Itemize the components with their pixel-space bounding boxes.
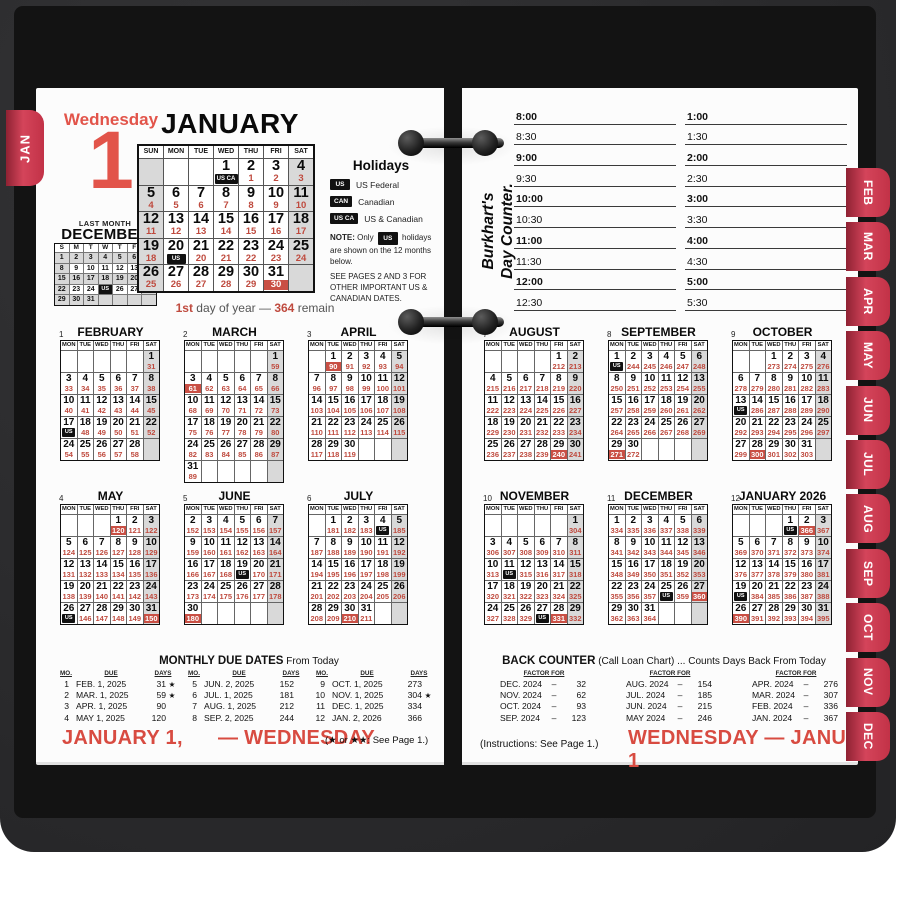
day-count: 34 (78, 384, 94, 393)
schedule-line: 3:30 (685, 207, 847, 228)
mini-day-cell: 20170 (251, 559, 267, 580)
day-count: 164 (268, 548, 284, 557)
day-number: 3 (485, 537, 501, 549)
day-count: 196 (342, 570, 358, 579)
mini-day-cell: 2078 (235, 417, 251, 438)
mini-day-cell (551, 515, 567, 536)
days-remaining-value: 364 (274, 301, 294, 315)
day-number: 8 (783, 537, 799, 549)
day-count: 267 (659, 428, 675, 437)
day-count: 255 (692, 384, 708, 393)
day-count: 289 (799, 406, 815, 415)
day-number: 5 (139, 186, 163, 201)
day-count: 92 (359, 362, 375, 371)
day-number: 15 (609, 395, 625, 407)
us-holiday-marker: US (784, 526, 797, 535)
dow-header-cell: MON (485, 341, 501, 350)
mini-day-cell (675, 603, 691, 624)
day-count: 386 (783, 592, 799, 601)
day-number: 20 (164, 239, 188, 254)
calendar-day-cell: 98 (239, 186, 263, 212)
schedule-line: 8:30 (514, 125, 676, 146)
mini-day-cell: 190 (326, 351, 342, 372)
mini-day-cell: 14164 (268, 537, 284, 558)
mini-day-cell: 27US (535, 603, 551, 624)
dow-header-cell: MON (185, 505, 201, 514)
day-count: 276 (816, 362, 832, 371)
dow-header-cell: T (84, 244, 98, 252)
schedule-time-label: 9:00 (516, 152, 537, 164)
day-count: 65 (251, 384, 267, 393)
mini-day-cell: 29209 (326, 603, 342, 624)
mini-day-cell (202, 603, 218, 624)
day-count: 181 (326, 526, 342, 535)
mini-day-cell (235, 461, 251, 482)
back-counter-title: BACK COUNTER (Call Loan Chart) ... Count… (478, 655, 850, 667)
day-count: 140 (94, 592, 110, 601)
day-number: 3 (61, 373, 77, 385)
mini-day-cell: 9220 (568, 373, 584, 394)
due-days: 366 (400, 713, 422, 724)
mini-day-cell (485, 515, 501, 536)
mini-day-cell: 24327 (485, 603, 501, 624)
due-days: 181 (272, 690, 294, 701)
last-month-day-cell: 2 (70, 253, 84, 263)
day-count: 268 (675, 428, 691, 437)
mini-month-grid: MONTUEWEDTHUFRISAT1273227432754276627872… (732, 340, 832, 461)
day-count: 357 (642, 592, 658, 601)
dow-header-cell: WED (642, 505, 658, 514)
holiday-label: US & Canadian (364, 214, 423, 224)
day-count: 322 (518, 592, 534, 601)
tab-mar[interactable]: MAR (846, 222, 890, 271)
day-count: 387 (799, 592, 815, 601)
due-star (294, 713, 306, 724)
day-count: 91 (342, 362, 358, 371)
day-count: 320 (485, 592, 501, 601)
day-count: 279 (750, 384, 766, 393)
schedule-line: 1:00 (685, 104, 847, 125)
mini-day-cell: 10343 (642, 537, 658, 558)
dow-header-cell: FRI (375, 341, 391, 350)
tab-jan[interactable]: JAN (6, 110, 44, 186)
mini-day-cell: 28208 (309, 603, 325, 624)
last-month-day-cell: 10 (84, 264, 98, 274)
factor-month: JUN. 2024 (618, 701, 674, 712)
day-number: 3 (642, 351, 658, 363)
day-count: 122 (144, 526, 160, 535)
tab-jun[interactable]: JUN (846, 386, 890, 435)
due-month-number: 10 (314, 690, 328, 701)
day-count: 274 (783, 362, 799, 371)
day-number: 29 (609, 603, 625, 615)
mini-day-cell: 26329 (518, 603, 534, 624)
mini-day-cell: 1949 (94, 417, 110, 438)
due-month-number: 1 (58, 679, 72, 690)
due-days: 59 (144, 690, 166, 701)
day-number: 2 (127, 515, 143, 527)
mini-day-cell: 4307 (502, 537, 518, 558)
factor-for-header: FACTOR FOR (744, 670, 848, 677)
day-number: 26 (502, 439, 518, 451)
day-count: 222 (485, 406, 501, 415)
back-counter-row: JUN. 2024–215 (618, 701, 722, 712)
day-number: 11 (78, 395, 94, 407)
day-count: 7 (214, 201, 238, 211)
mini-month-number: 11 (607, 492, 615, 505)
day-count: 283 (816, 384, 832, 393)
mini-day-cell: 897 (326, 373, 342, 394)
day-number: 30 (239, 265, 263, 280)
mini-day-cell: 4US (375, 515, 391, 536)
mini-day-cell: 1545 (144, 395, 160, 416)
day-number: 31 (144, 603, 160, 615)
day-count: 391 (750, 614, 766, 623)
day-number: 1 (326, 351, 342, 363)
mini-day-cell: 12192 (392, 537, 408, 558)
mini-day-cell: 28392 (766, 603, 782, 624)
day-count: 381 (816, 570, 832, 579)
day-count: 372 (783, 548, 799, 557)
mini-day-cell: 28300 (750, 439, 766, 460)
mini-month-number: 4 (59, 492, 63, 505)
mini-month-november: NOVEMBER10MONTUEWEDTHUFRISAT130433064307… (484, 490, 585, 625)
day-count: 24 (289, 254, 313, 264)
mini-day-cell: 22111 (326, 417, 342, 438)
day-count: 93 (375, 362, 391, 371)
mini-month-title: MAY4 (60, 490, 161, 504)
day-count: 394 (799, 614, 815, 623)
day-count: 217 (518, 384, 534, 393)
day-number: 4 (202, 373, 218, 385)
mini-day-cell: 7187 (309, 537, 325, 558)
mini-day-cell: 11US (502, 559, 518, 580)
schedule-line: 4:30 (685, 249, 847, 270)
calendar-day-cell: 1918 (139, 239, 163, 265)
holidays-see-note: SEE PAGES 2 AND 3 FOR OTHER IMPORTANT US… (330, 271, 438, 304)
mini-day-cell: 765 (251, 373, 267, 394)
mini-month-title: OCTOBER9 (732, 326, 833, 340)
day-number: 21 (189, 239, 213, 254)
mini-day-cell: 12131 (61, 559, 77, 580)
tab-sep[interactable]: SEP (846, 549, 890, 598)
day-count: 25 (139, 280, 163, 290)
day-number: 6 (535, 537, 551, 549)
day-number: 30 (626, 603, 642, 615)
calendar-day-cell (189, 159, 213, 185)
brand-line-1: Burkhart's (479, 156, 498, 306)
calendar-day-cell: 3130 (264, 265, 288, 291)
mini-day-cell: 2886 (251, 439, 267, 460)
mini-day-cell: 16380 (799, 559, 815, 580)
day-count: 265 (626, 428, 642, 437)
dow-header-cell: WED (94, 505, 110, 514)
mini-month-number: 6 (307, 492, 311, 505)
day-number: 25 (375, 581, 391, 593)
tab-feb[interactable]: FEB (846, 168, 890, 217)
due-month-number: 8 (186, 713, 200, 724)
mini-day-cell: 1371 (235, 395, 251, 416)
last-month-day-cell: 1 (55, 253, 69, 263)
day-number: 16 (127, 559, 143, 571)
day-count: 107 (375, 406, 391, 415)
day-number: 28 (189, 265, 213, 280)
day-number: 15 (609, 559, 625, 571)
day-number: 25 (816, 417, 832, 429)
schedule-line: 2:30 (685, 166, 847, 187)
day-number: 22 (214, 239, 238, 254)
dow-header-cell: TUE (326, 505, 342, 514)
mini-day-cell: 15195 (326, 559, 342, 580)
day-count: 161 (218, 548, 234, 557)
due-date-row: 10NOV. 1, 2025304★ (314, 690, 434, 701)
mini-day-cell: 7310 (551, 537, 567, 558)
mini-day-cell: 2757 (111, 439, 127, 460)
day-count: 20 (189, 254, 213, 264)
day-count: 318 (568, 570, 584, 579)
day-number: 17 (799, 395, 815, 407)
back-counter-row: DEC. 2024–32 (492, 679, 596, 690)
dow-header-cell: MON (309, 505, 325, 514)
mini-day-cell: 3153 (202, 515, 218, 536)
mini-day-cell: 4246 (659, 351, 675, 372)
day-count: 22 (239, 254, 263, 264)
day-number: 11 (485, 395, 501, 407)
day-count: 288 (783, 406, 799, 415)
mini-day-cell: 19US (235, 559, 251, 580)
mini-day-cell: 6125 (78, 537, 94, 558)
day-number: 2 (799, 515, 815, 527)
day-number: 20 (692, 395, 708, 407)
day-number: 13 (78, 559, 94, 571)
mini-day-cell: 20139 (78, 581, 94, 602)
mini-day-cell: 24204 (359, 581, 375, 602)
mini-day-cell: 14133 (94, 559, 110, 580)
day-number: 21 (127, 417, 143, 429)
mini-day-cell: 8127 (111, 537, 127, 558)
tab-may[interactable]: MAY (846, 331, 890, 380)
day-number: 23 (185, 581, 201, 593)
day-number: 26 (61, 603, 77, 615)
day-count: 180 (185, 614, 201, 623)
day-count: 204 (359, 592, 375, 601)
day-number: 13 (692, 373, 708, 385)
dow-header-cell: TUE (626, 341, 642, 350)
tab-aug[interactable]: AUG (846, 494, 890, 543)
day-number: 6 (733, 373, 749, 385)
day-count: 227 (568, 406, 584, 415)
mini-day-cell: 159 (268, 351, 284, 372)
mini-day-cell: 21140 (94, 581, 110, 602)
day-count: 51 (127, 428, 143, 437)
mini-day-cell: 9189 (342, 537, 358, 558)
day-number: 30 (568, 439, 584, 451)
day-number: 29 (111, 603, 127, 615)
mini-day-cell: 7157 (268, 515, 284, 536)
mini-day-cell: 23295 (783, 417, 799, 438)
day-number: 2 (185, 515, 201, 527)
day-count: 68 (185, 406, 201, 415)
mini-day-cell: 11191 (375, 537, 391, 558)
dow-header-cell: FRI (675, 505, 691, 514)
schedule-line: 1:30 (685, 125, 847, 146)
day-number: 18 (289, 212, 313, 227)
mini-month-grid: MONTUEWEDTHUFRISAT1304330643075308630973… (484, 504, 584, 625)
due-days: 90 (144, 701, 166, 712)
day-count: 1 (239, 174, 263, 184)
calendar-day-cell: 20US (164, 239, 188, 265)
tab-dec[interactable]: DEC (846, 712, 890, 761)
day-number: 22 (766, 417, 782, 429)
day-count: 275 (799, 362, 815, 371)
factor-dash: – (800, 679, 812, 690)
day-count: 54 (61, 450, 77, 459)
dow-header-cell: THU (535, 505, 551, 514)
factor-value: 336 (812, 701, 838, 712)
tab-jul[interactable]: JUL (846, 440, 890, 489)
back-counter-row: FEB. 2024–336 (744, 701, 848, 712)
day-count: 126 (94, 548, 110, 557)
mini-day-cell: 12162 (235, 537, 251, 558)
day-number: 8 (111, 537, 127, 549)
factor-month: DEC. 2024 (492, 679, 548, 690)
dow-header-cell: WED (642, 341, 658, 350)
schedule-line: 12:30 (514, 290, 676, 311)
day-number: 16 (568, 395, 584, 407)
mini-day-cell: 8188 (326, 537, 342, 558)
tab-oct[interactable]: OCT (846, 603, 890, 652)
schedule-time-label: 4:00 (687, 235, 708, 247)
dow-header-cell: SAT (816, 505, 832, 514)
mini-day-cell: 13224 (518, 395, 534, 416)
calendar-day-cell: 2524 (289, 239, 313, 265)
schedule-time-label: 2:00 (687, 152, 708, 164)
back-counter-group: FACTOR FORAPR. 2024–276MAR. 2024–307FEB.… (744, 670, 848, 724)
mini-day-cell: 11344 (659, 537, 675, 558)
day-count: 115 (392, 428, 408, 437)
mini-day-cell: 1977 (218, 417, 234, 438)
mini-day-cell: 462 (202, 373, 218, 394)
day-number: 30 (185, 603, 201, 615)
day-count: 236 (485, 450, 501, 459)
day-number: 13 (535, 559, 551, 571)
day-count: 71 (235, 406, 251, 415)
mini-day-cell (359, 439, 375, 460)
day-number: 26 (733, 603, 749, 615)
mini-day-cell: 563 (218, 373, 234, 394)
day-number: 31 (816, 603, 832, 615)
day-number: 26 (675, 581, 691, 593)
day-count: 62 (202, 384, 218, 393)
day-number: 1 (214, 159, 238, 174)
tab-apr[interactable]: APR (846, 277, 890, 326)
last-month-day-cell (128, 295, 142, 305)
day-number: 9 (799, 537, 815, 549)
dow-header-cell: THU (535, 341, 551, 350)
mini-day-cell: 2482 (185, 439, 201, 460)
day-number: 19 (518, 581, 534, 593)
day-count: 63 (218, 384, 234, 393)
mini-day-cell: 29240 (551, 439, 567, 460)
mini-day-cell: 6309 (535, 537, 551, 558)
mini-day-cell: 2987 (268, 439, 284, 460)
due-dates-group: MO.DUEDAYS9OCT. 1, 202527310NOV. 1, 2025… (314, 670, 434, 724)
day-number: 13 (251, 537, 267, 549)
back-counter-row: AUG. 2024–154 (618, 679, 722, 690)
mini-day-cell: 2151 (127, 417, 143, 438)
day-number: 6 (111, 373, 127, 385)
mini-day-cell: 13316 (535, 559, 551, 580)
mini-day-cell (251, 461, 267, 482)
mini-day-cell: 23203 (342, 581, 358, 602)
day-count: 339 (692, 526, 708, 535)
calendar-day-cell: 1514 (214, 212, 238, 238)
day-number: 2 (626, 515, 642, 527)
day-number: 6 (235, 373, 251, 385)
day-number: 7 (268, 515, 284, 527)
day-number: 27 (692, 581, 708, 593)
dow-header-cell: THU (235, 505, 251, 514)
schedule-time-label: 3:00 (687, 193, 708, 205)
day-count: 315 (518, 570, 534, 579)
day-number: 21 (268, 559, 284, 571)
mini-day-cell: 24388 (816, 581, 832, 602)
due-dates-header: MO.DUEDAYS (58, 670, 178, 677)
dow-header-cell: SAT (268, 505, 284, 514)
day-number: 5 (94, 373, 110, 385)
day-count: 310 (551, 548, 567, 557)
factor-for-header: FACTOR FOR (492, 670, 596, 677)
dow-header-cell: SAT (289, 146, 313, 158)
tab-nov[interactable]: NOV (846, 658, 890, 707)
day-number: 27 (750, 603, 766, 615)
mini-day-cell: 23387 (799, 581, 815, 602)
day-number: 1 (568, 515, 584, 527)
mini-day-cell: 10129 (144, 537, 160, 558)
dow-header-cell: TUE (750, 341, 766, 350)
mini-day-cell: 636 (111, 373, 127, 394)
day-count: 61 (185, 384, 201, 393)
factor-dash: – (800, 701, 812, 712)
day-number: 30 (342, 603, 358, 615)
last-month-day-cell: 22 (55, 285, 69, 295)
due-date-row: 1FEB. 1, 202531★ (58, 679, 178, 690)
schedule-time-label: 12:00 (516, 276, 543, 288)
day-count: 35 (94, 384, 110, 393)
day-count: 360 (692, 592, 708, 601)
mini-day-cell: 535 (94, 373, 110, 394)
day-number: 2 (783, 351, 799, 363)
day-count: 251 (626, 384, 642, 393)
factor-month: MAY 2024 (618, 713, 674, 724)
day-count: 337 (659, 526, 675, 535)
day-count: 208 (309, 614, 325, 623)
day-number: 3 (799, 351, 815, 363)
day-count: 157 (268, 526, 284, 535)
mini-day-cell: 7279 (750, 373, 766, 394)
mini-day-cell: 1141 (78, 395, 94, 416)
day-count: 135 (127, 570, 143, 579)
schedule-line: 11:30 (514, 249, 676, 270)
day-number: 14 (309, 395, 325, 407)
last-month-day-cell: 17 (84, 274, 98, 284)
col-header-due: DUE (330, 670, 404, 677)
day-number: 28 (750, 439, 766, 451)
mini-day-cell: 15104 (326, 395, 342, 416)
day-number: 18 (202, 417, 218, 429)
footer-star-note: (★ or ★★: See Page 1.) (325, 735, 428, 746)
day-count: 189 (342, 548, 358, 557)
